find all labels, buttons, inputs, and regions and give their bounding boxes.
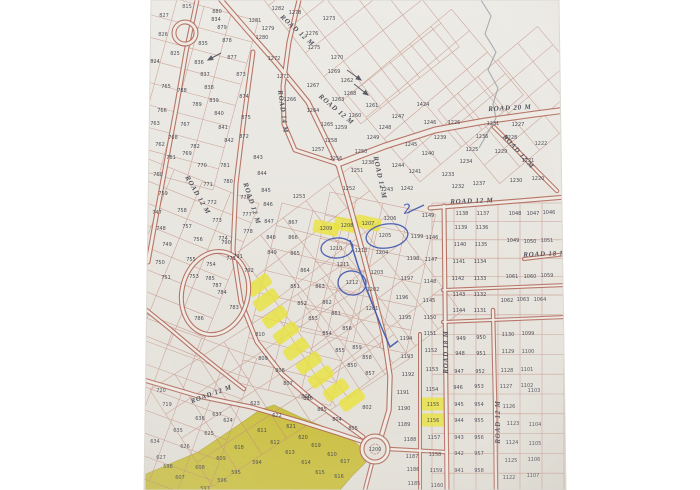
map-photo-page: 8158808278348798268358788258778248368378…: [0, 0, 700, 490]
cadastral-map-photo: 8158808278348798268358788258778248368378…: [0, 0, 700, 490]
